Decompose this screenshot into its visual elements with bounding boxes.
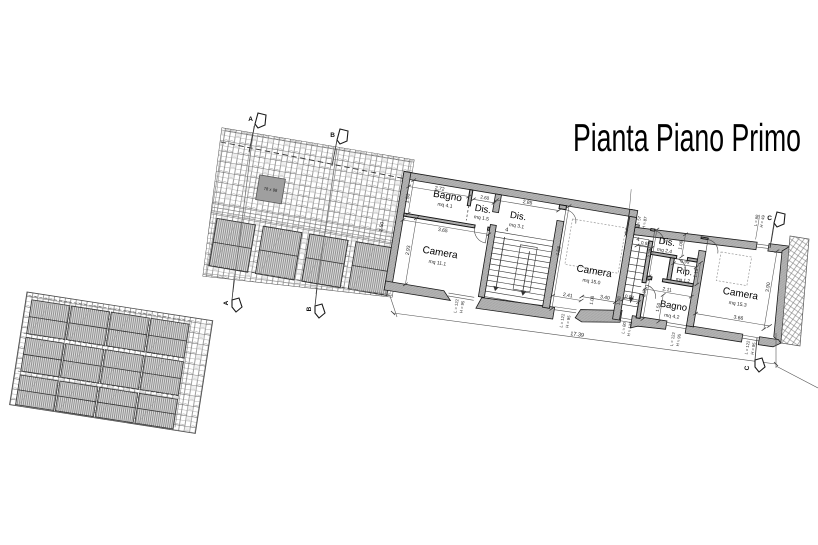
svg-text:C: C xyxy=(744,365,751,370)
svg-text:B: B xyxy=(306,306,313,311)
svg-text:A: A xyxy=(248,116,253,123)
svg-text:Pianta Piano Primo: Pianta Piano Primo xyxy=(573,117,801,160)
svg-text:C: C xyxy=(767,215,772,222)
svg-text:B: B xyxy=(330,132,335,139)
svg-text:A: A xyxy=(223,300,230,305)
